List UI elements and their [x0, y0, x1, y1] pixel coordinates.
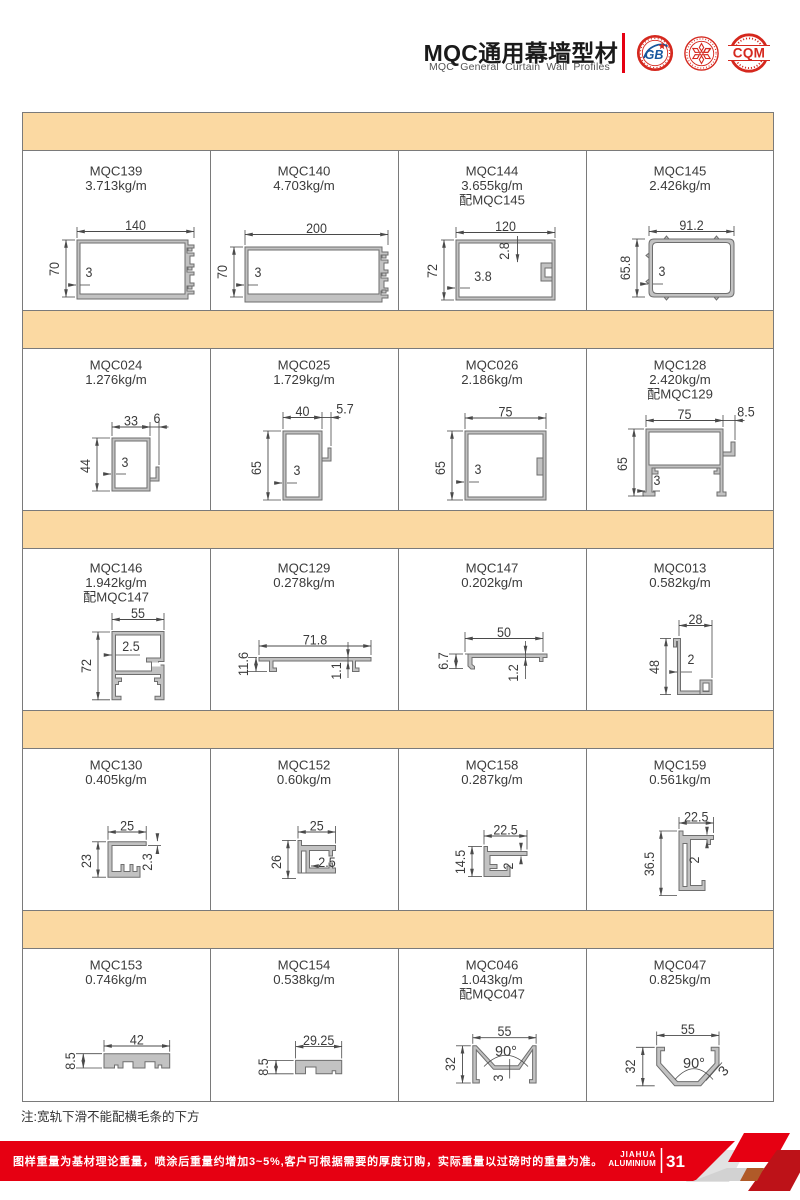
svg-text:75: 75	[499, 405, 513, 421]
svg-text:配MQC047: 配MQC047	[459, 987, 525, 1002]
svg-text:3: 3	[491, 1074, 507, 1081]
svg-text:140: 140	[125, 218, 146, 234]
svg-text:48: 48	[647, 660, 663, 674]
svg-text:MQC140: MQC140	[278, 164, 331, 179]
svg-text:配MQC129: 配MQC129	[647, 387, 713, 402]
svg-text:1.1: 1.1	[329, 662, 345, 679]
svg-text:MQC144: MQC144	[466, 164, 519, 179]
svg-text:36.5: 36.5	[642, 852, 658, 876]
svg-text:65: 65	[433, 461, 449, 475]
svg-text:200: 200	[306, 221, 327, 237]
svg-text:1.2: 1.2	[506, 664, 522, 681]
svg-text:8.5: 8.5	[256, 1058, 272, 1075]
svg-text:26: 26	[269, 855, 285, 869]
svg-text:22.5: 22.5	[684, 810, 708, 826]
svg-text:11.6: 11.6	[236, 652, 252, 676]
svg-text:0.202kg/m: 0.202kg/m	[461, 575, 523, 590]
svg-text:2.420kg/m: 2.420kg/m	[649, 372, 711, 387]
svg-text:4.703kg/m: 4.703kg/m	[273, 178, 335, 193]
svg-text:28: 28	[689, 612, 703, 628]
svg-text:MQC146: MQC146	[90, 561, 143, 576]
svg-text:3: 3	[659, 264, 666, 280]
svg-text:8.5: 8.5	[737, 405, 754, 421]
svg-text:90°: 90°	[495, 1044, 517, 1060]
svg-text:3: 3	[122, 455, 129, 471]
svg-text:MQC130: MQC130	[90, 758, 143, 773]
svg-text:3.713kg/m: 3.713kg/m	[85, 178, 147, 193]
svg-text:GB: GB	[645, 48, 664, 62]
svg-text:3: 3	[475, 462, 482, 478]
svg-text:71.8: 71.8	[303, 633, 327, 649]
svg-text:72: 72	[79, 659, 95, 673]
svg-text:3: 3	[294, 463, 301, 479]
svg-text:72: 72	[425, 264, 441, 278]
svg-text:MQC026: MQC026	[466, 358, 519, 373]
svg-text:120: 120	[495, 219, 516, 235]
svg-text:MQC047: MQC047	[654, 958, 707, 973]
svg-text:3.655kg/m: 3.655kg/m	[461, 178, 523, 193]
svg-text:0.825kg/m: 0.825kg/m	[649, 972, 711, 987]
svg-text:MQC158: MQC158	[466, 758, 519, 773]
svg-text:0.287kg/m: 0.287kg/m	[461, 772, 523, 787]
svg-text:65: 65	[615, 457, 631, 471]
svg-text:MQC046: MQC046	[466, 958, 519, 973]
svg-text:MQC139: MQC139	[90, 164, 143, 179]
svg-text:0.561kg/m: 0.561kg/m	[649, 772, 711, 787]
svg-text:ALUMINIUM: ALUMINIUM	[608, 1159, 656, 1168]
svg-text:31: 31	[666, 1152, 685, 1171]
svg-text:MQC159: MQC159	[654, 758, 707, 773]
svg-text:29.25: 29.25	[303, 1033, 334, 1049]
svg-text:65: 65	[249, 461, 265, 475]
svg-text:6.7: 6.7	[436, 652, 452, 669]
svg-text:5.7: 5.7	[336, 402, 353, 418]
svg-text:40: 40	[296, 404, 310, 420]
svg-text:3.8: 3.8	[474, 269, 491, 285]
svg-text:42: 42	[130, 1033, 144, 1049]
svg-text:2: 2	[688, 652, 695, 668]
svg-text:32: 32	[443, 1057, 459, 1071]
svg-text:2.8: 2.8	[497, 242, 513, 259]
svg-text:MQC154: MQC154	[278, 958, 331, 973]
svg-text:MQC129: MQC129	[278, 561, 331, 576]
svg-text:3: 3	[255, 265, 262, 281]
svg-text:75: 75	[678, 407, 692, 423]
svg-text:0.582kg/m: 0.582kg/m	[649, 575, 711, 590]
svg-text:2: 2	[687, 856, 703, 863]
svg-text:MQC147: MQC147	[466, 561, 519, 576]
svg-text:配MQC147: 配MQC147	[83, 590, 149, 605]
svg-text:2: 2	[501, 862, 517, 869]
svg-text:44: 44	[78, 459, 94, 473]
svg-text:0.746kg/m: 0.746kg/m	[85, 972, 147, 987]
svg-text:23: 23	[79, 854, 95, 868]
svg-text:0.538kg/m: 0.538kg/m	[273, 972, 335, 987]
svg-text:1.043kg/m: 1.043kg/m	[461, 972, 523, 987]
svg-text:1.942kg/m: 1.942kg/m	[85, 575, 147, 590]
svg-text:配MQC145: 配MQC145	[459, 193, 525, 208]
svg-text:MQC128: MQC128	[654, 358, 707, 373]
svg-text:6: 6	[154, 411, 161, 427]
svg-text:32: 32	[623, 1059, 639, 1073]
svg-text:MQC152: MQC152	[278, 758, 331, 773]
svg-text:70: 70	[47, 262, 63, 276]
svg-text:图样重量为基材理论重量，喷涂后重量约增加3~5%,客户可根据: 图样重量为基材理论重量，喷涂后重量约增加3~5%,客户可根据需要的厚度订购，实际…	[13, 1154, 603, 1168]
svg-text:MQC025: MQC025	[278, 358, 331, 373]
svg-text:2.426kg/m: 2.426kg/m	[649, 178, 711, 193]
svg-text:3: 3	[715, 1063, 732, 1079]
svg-text:25: 25	[120, 819, 134, 835]
svg-text:55: 55	[681, 1022, 695, 1038]
svg-text:3: 3	[86, 265, 93, 281]
svg-text:MQC153: MQC153	[90, 958, 143, 973]
svg-text:MQC024: MQC024	[90, 358, 143, 373]
svg-text:CQM: CQM	[733, 46, 765, 61]
svg-text:70: 70	[215, 265, 231, 279]
svg-text:1.276kg/m: 1.276kg/m	[85, 372, 147, 387]
svg-text:14.5: 14.5	[453, 850, 469, 874]
svg-text:25: 25	[310, 819, 324, 835]
svg-text:2.5: 2.5	[318, 855, 335, 871]
svg-text:0.60kg/m: 0.60kg/m	[277, 772, 331, 787]
svg-text:65.8: 65.8	[618, 256, 634, 280]
svg-text:JIAHUA: JIAHUA	[620, 1150, 656, 1159]
svg-text:91.2: 91.2	[679, 218, 703, 234]
svg-text:50: 50	[497, 625, 511, 641]
svg-text:0.278kg/m: 0.278kg/m	[273, 575, 335, 590]
svg-text:55: 55	[498, 1024, 512, 1040]
svg-text:MQC013: MQC013	[654, 561, 707, 576]
svg-text:55: 55	[131, 606, 145, 622]
svg-text:0.405kg/m: 0.405kg/m	[85, 772, 147, 787]
svg-text:3: 3	[654, 473, 661, 489]
svg-text:22.5: 22.5	[493, 823, 517, 839]
svg-text:2.5: 2.5	[122, 639, 139, 655]
svg-text:MQC145: MQC145	[654, 164, 707, 179]
svg-text:2.186kg/m: 2.186kg/m	[461, 372, 523, 387]
svg-text:33: 33	[124, 414, 138, 430]
svg-text:2.3: 2.3	[140, 853, 156, 870]
svg-text:1.729kg/m: 1.729kg/m	[273, 372, 335, 387]
svg-text:90°: 90°	[683, 1056, 705, 1072]
svg-text:8.5: 8.5	[63, 1052, 79, 1069]
